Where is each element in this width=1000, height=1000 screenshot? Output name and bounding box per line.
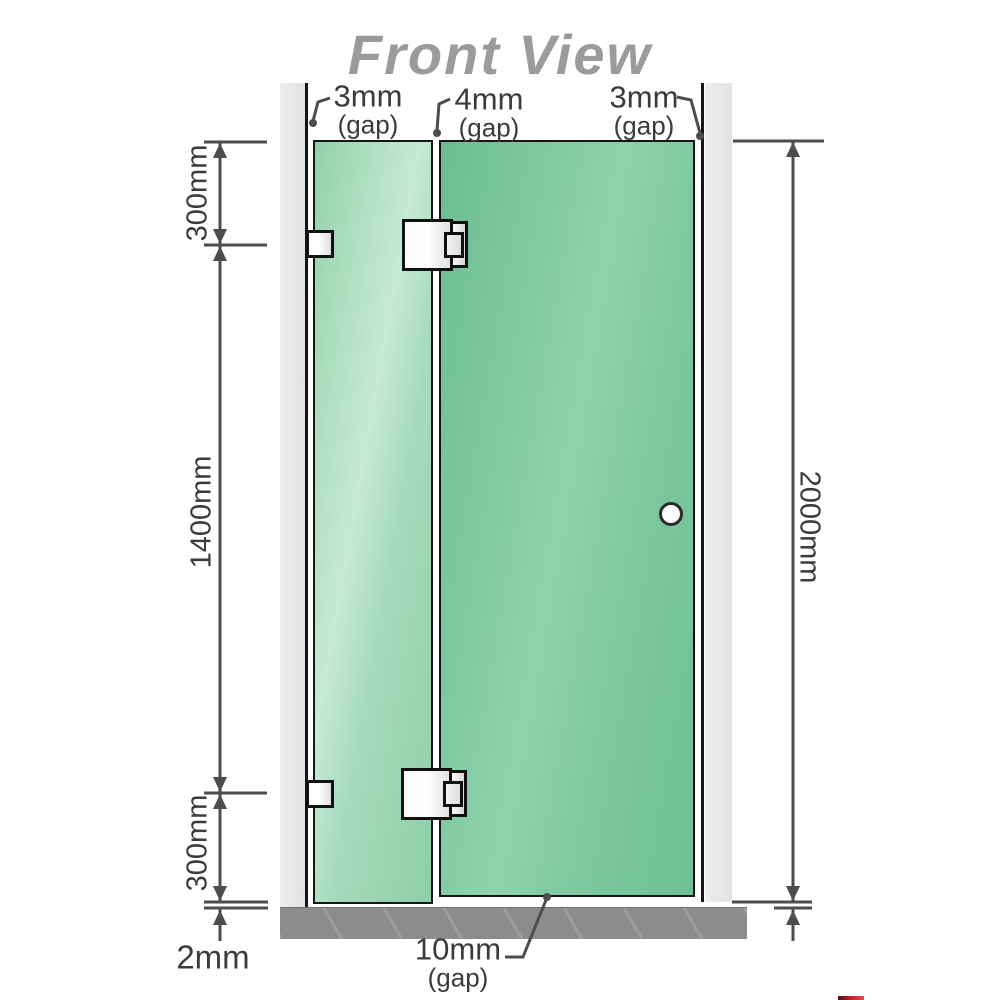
wall-post-right	[705, 83, 732, 902]
diagram-canvas: Front View	[0, 0, 1000, 1000]
gap-right-value: 3mm	[610, 82, 679, 113]
gap-bottom-value: 10mm	[415, 934, 501, 965]
dim-label-2000: 2000mm	[793, 471, 826, 584]
dim-label-300-bottom: 300mm	[182, 795, 215, 892]
gap-bottom-suffix: (gap)	[415, 965, 501, 991]
gap-right-suffix: (gap)	[610, 113, 679, 139]
glass-panel-door	[439, 140, 695, 897]
dim-label-2mm: 2mm	[176, 941, 249, 974]
diagram-title: Front View	[0, 22, 1000, 87]
gap-middle-value: 4mm	[455, 84, 524, 115]
wall-bracket-bottom	[306, 780, 334, 808]
dim-label-300-top: 300mm	[182, 145, 215, 242]
gap-label-right: 3mm (gap)	[610, 82, 679, 139]
wall-profile-line-right	[701, 83, 704, 902]
hinge-top	[402, 219, 468, 271]
door-knob	[659, 502, 683, 526]
dim-2mm-value: 2mm	[176, 941, 249, 974]
gap-middle-suffix: (gap)	[455, 115, 524, 141]
gap-left-suffix: (gap)	[334, 112, 403, 138]
hinge-tab	[443, 781, 463, 807]
floor-base	[280, 907, 747, 939]
hinge-bottom	[401, 768, 467, 820]
gap-label-left: 3mm (gap)	[334, 81, 403, 138]
dim-label-1400: 1400mm	[186, 456, 219, 569]
gap-label-bottom: 10mm (gap)	[415, 934, 501, 991]
gap-left-value: 3mm	[334, 81, 403, 112]
wall-post-left	[280, 83, 305, 907]
gap-label-middle: 4mm (gap)	[455, 84, 524, 141]
logo-fragment	[838, 996, 864, 1000]
wall-bracket-top	[306, 230, 334, 258]
hinge-tab	[444, 232, 464, 258]
